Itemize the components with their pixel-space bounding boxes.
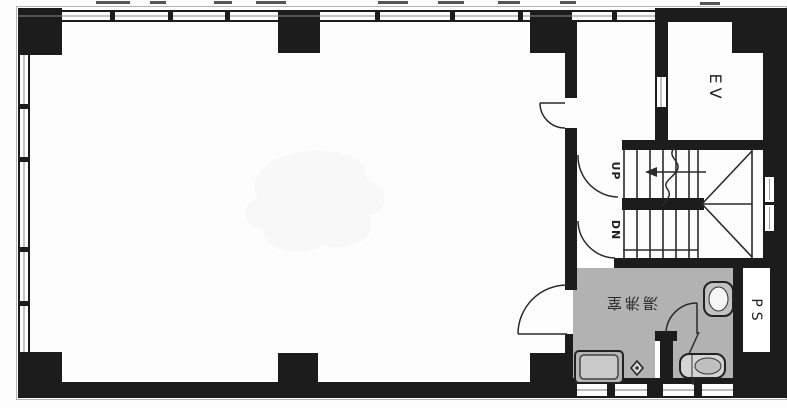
wall-below-pipe-shaft	[743, 352, 770, 385]
wall-bottom-column-2	[530, 353, 573, 383]
wall-kitchenette-left	[565, 334, 573, 354]
wall-elevator-notch-column	[732, 22, 767, 53]
wall-wc-left	[660, 338, 673, 385]
wall-elevator-left-upper	[655, 22, 668, 77]
label-elevator: EV	[694, 68, 738, 108]
wall-core-left	[565, 128, 577, 290]
label-stairs-up: UP	[602, 157, 630, 185]
wall-bottom-left-column	[18, 352, 62, 382]
wall-above-stairs	[622, 140, 763, 150]
wall-right	[763, 8, 787, 398]
stair-divider-wall	[622, 198, 704, 210]
floor-wc	[673, 340, 733, 383]
wall-below-stairs	[614, 258, 787, 268]
wall-elevator-left-lower	[655, 107, 668, 140]
label-pipe-shaft: PS	[740, 296, 772, 328]
floor-plan: EV UP DN PS 湯沸室	[0, 0, 787, 408]
scan-dashes	[96, 1, 720, 5]
wall-bottom-column-1	[278, 353, 318, 382]
wall-anteroom-upper	[565, 22, 577, 98]
label-stairs-down: DN	[602, 216, 630, 244]
wall-top-column-1	[278, 10, 320, 53]
wall-top-left-column	[18, 8, 62, 55]
window-left	[18, 55, 30, 352]
label-kitchenette: 湯沸室	[593, 291, 669, 317]
window-partition	[655, 77, 668, 107]
